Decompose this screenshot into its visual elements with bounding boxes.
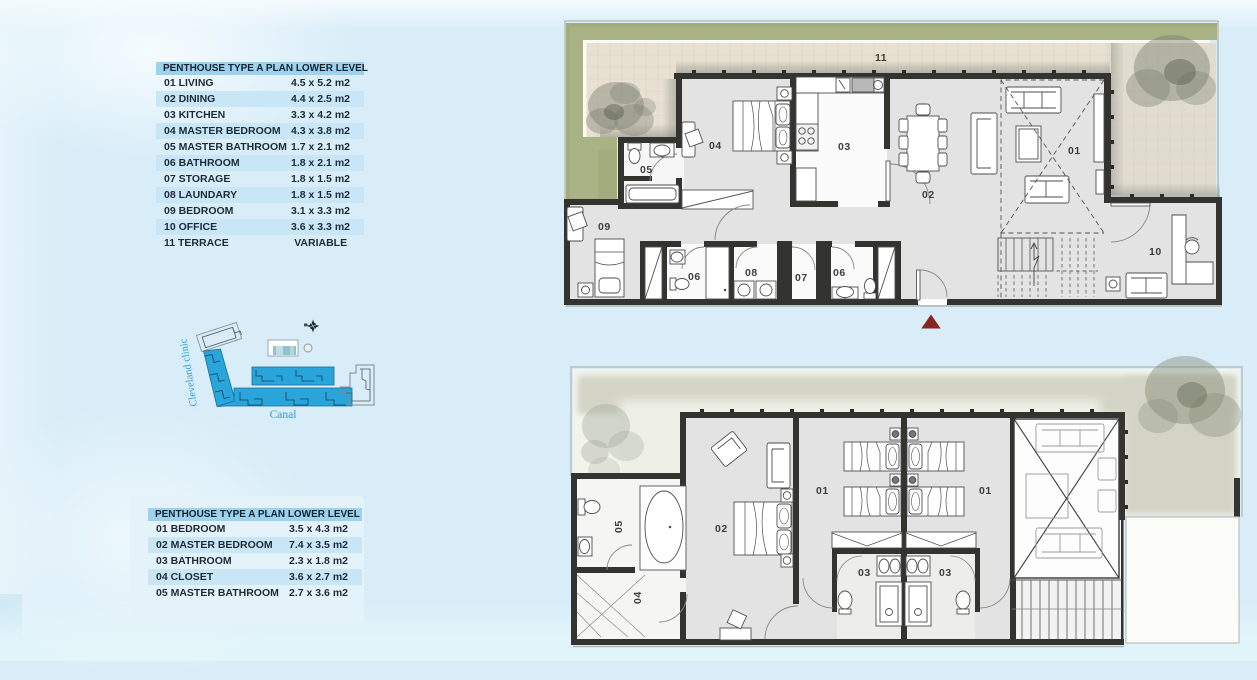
- svg-text:11: 11: [875, 52, 887, 64]
- svg-text:Canal: Canal: [270, 409, 297, 421]
- svg-text:03: 03: [838, 141, 851, 153]
- svg-text:02: 02: [715, 523, 728, 535]
- svg-text:06: 06: [833, 267, 846, 279]
- svg-text:10: 10: [1149, 246, 1162, 258]
- svg-text:01: 01: [979, 485, 992, 497]
- svg-text:08: 08: [745, 267, 758, 279]
- svg-text:01: 01: [816, 485, 829, 497]
- svg-text:01: 01: [1068, 145, 1081, 157]
- svg-text:07: 07: [795, 272, 808, 284]
- svg-text:04: 04: [709, 140, 722, 152]
- svg-text:03: 03: [939, 567, 952, 579]
- svg-text:06: 06: [688, 271, 701, 283]
- svg-text:02: 02: [922, 189, 935, 201]
- svg-text:03: 03: [858, 567, 871, 579]
- svg-text:05: 05: [640, 164, 653, 176]
- svg-text:09: 09: [598, 221, 611, 233]
- svg-text:04: 04: [632, 591, 644, 604]
- svg-text:Cleveland clinic: Cleveland clinic: [178, 338, 200, 408]
- svg-text:05: 05: [613, 520, 625, 533]
